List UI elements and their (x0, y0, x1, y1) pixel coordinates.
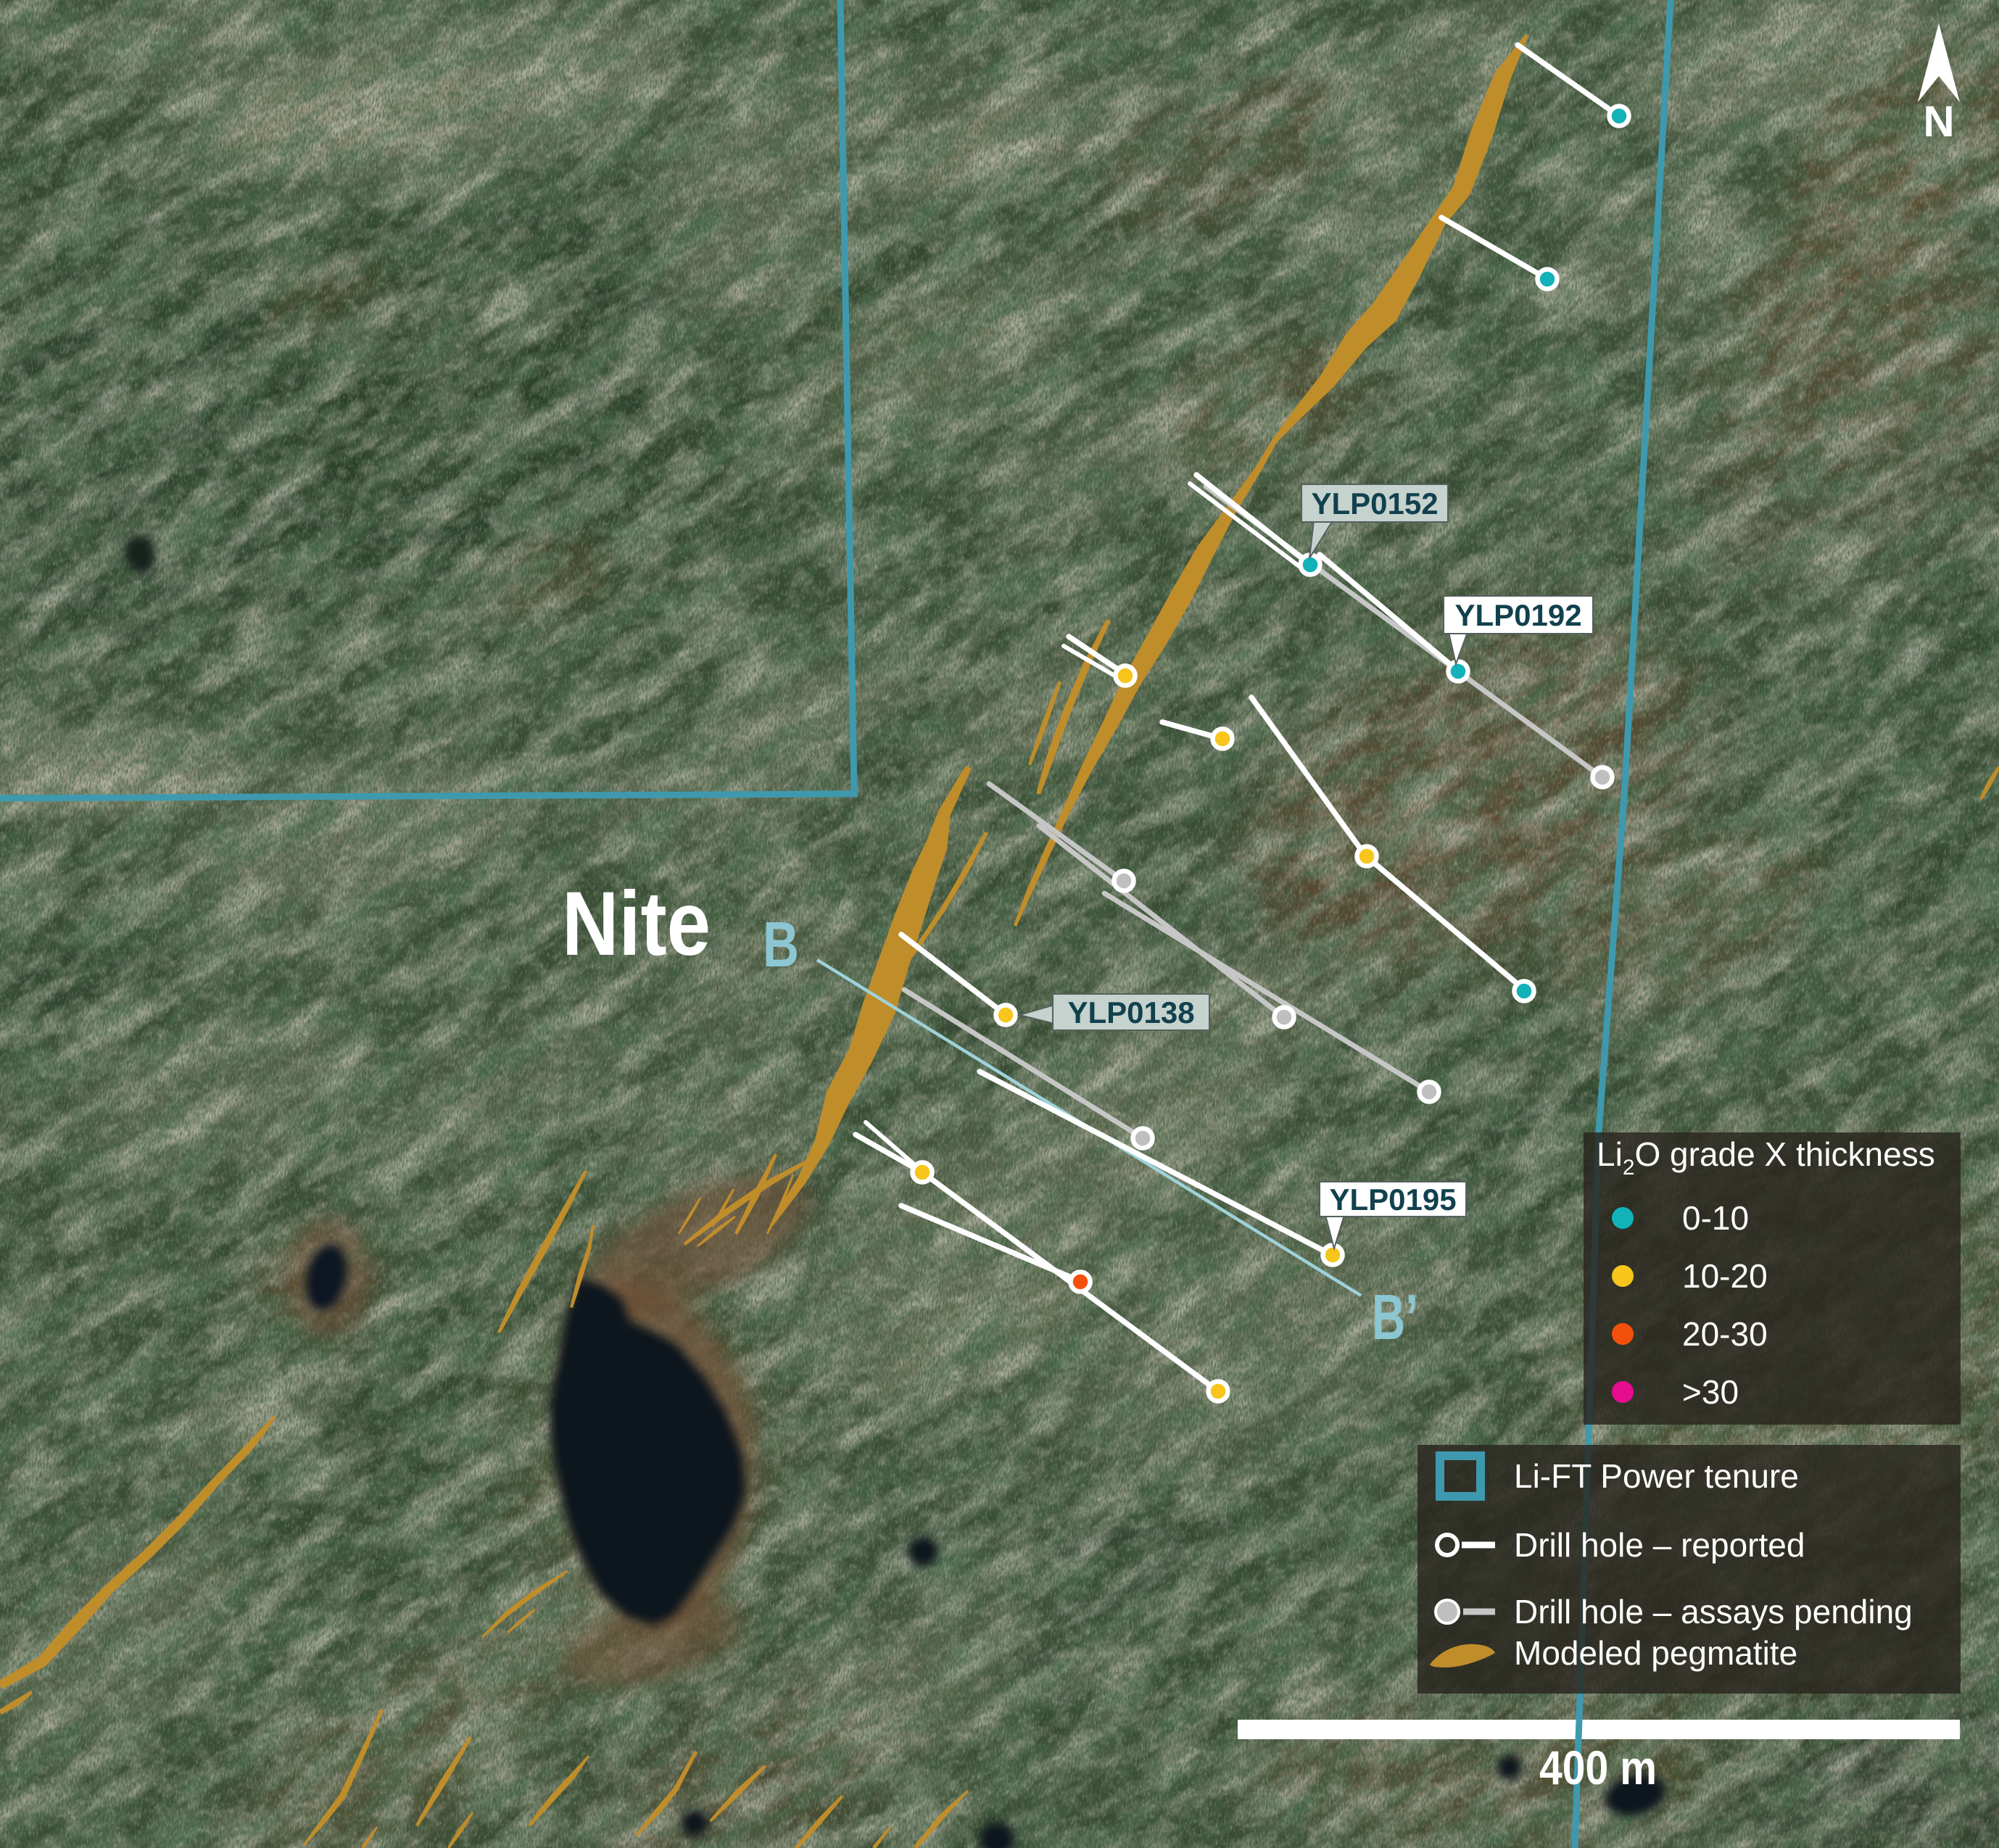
svg-text:B: B (763, 908, 799, 980)
svg-text:10-20: 10-20 (1682, 1257, 1768, 1295)
svg-text:Li-FT Power tenure: Li-FT Power tenure (1514, 1457, 1799, 1495)
svg-text:Modeled pegmatite: Modeled pegmatite (1514, 1634, 1797, 1672)
svg-text:Nite: Nite (562, 874, 711, 974)
svg-text:YLP0152: YLP0152 (1311, 486, 1438, 521)
svg-text:N: N (1923, 97, 1954, 146)
svg-text:>30: >30 (1682, 1373, 1739, 1411)
svg-text:Li2O grade X thickness: Li2O grade X thickness (1597, 1135, 1935, 1180)
svg-text:Drill hole – assays pending: Drill hole – assays pending (1514, 1593, 1913, 1631)
svg-text:400 m: 400 m (1539, 1741, 1657, 1794)
svg-text:YLP0192: YLP0192 (1454, 598, 1581, 632)
svg-text:YLP0195: YLP0195 (1329, 1182, 1456, 1217)
svg-text:0-10: 0-10 (1682, 1199, 1749, 1237)
svg-text:Drill hole – reported: Drill hole – reported (1514, 1526, 1805, 1564)
svg-text:20-30: 20-30 (1682, 1315, 1768, 1353)
svg-text:B’: B’ (1372, 1281, 1418, 1353)
svg-text:YLP0138: YLP0138 (1067, 995, 1194, 1029)
